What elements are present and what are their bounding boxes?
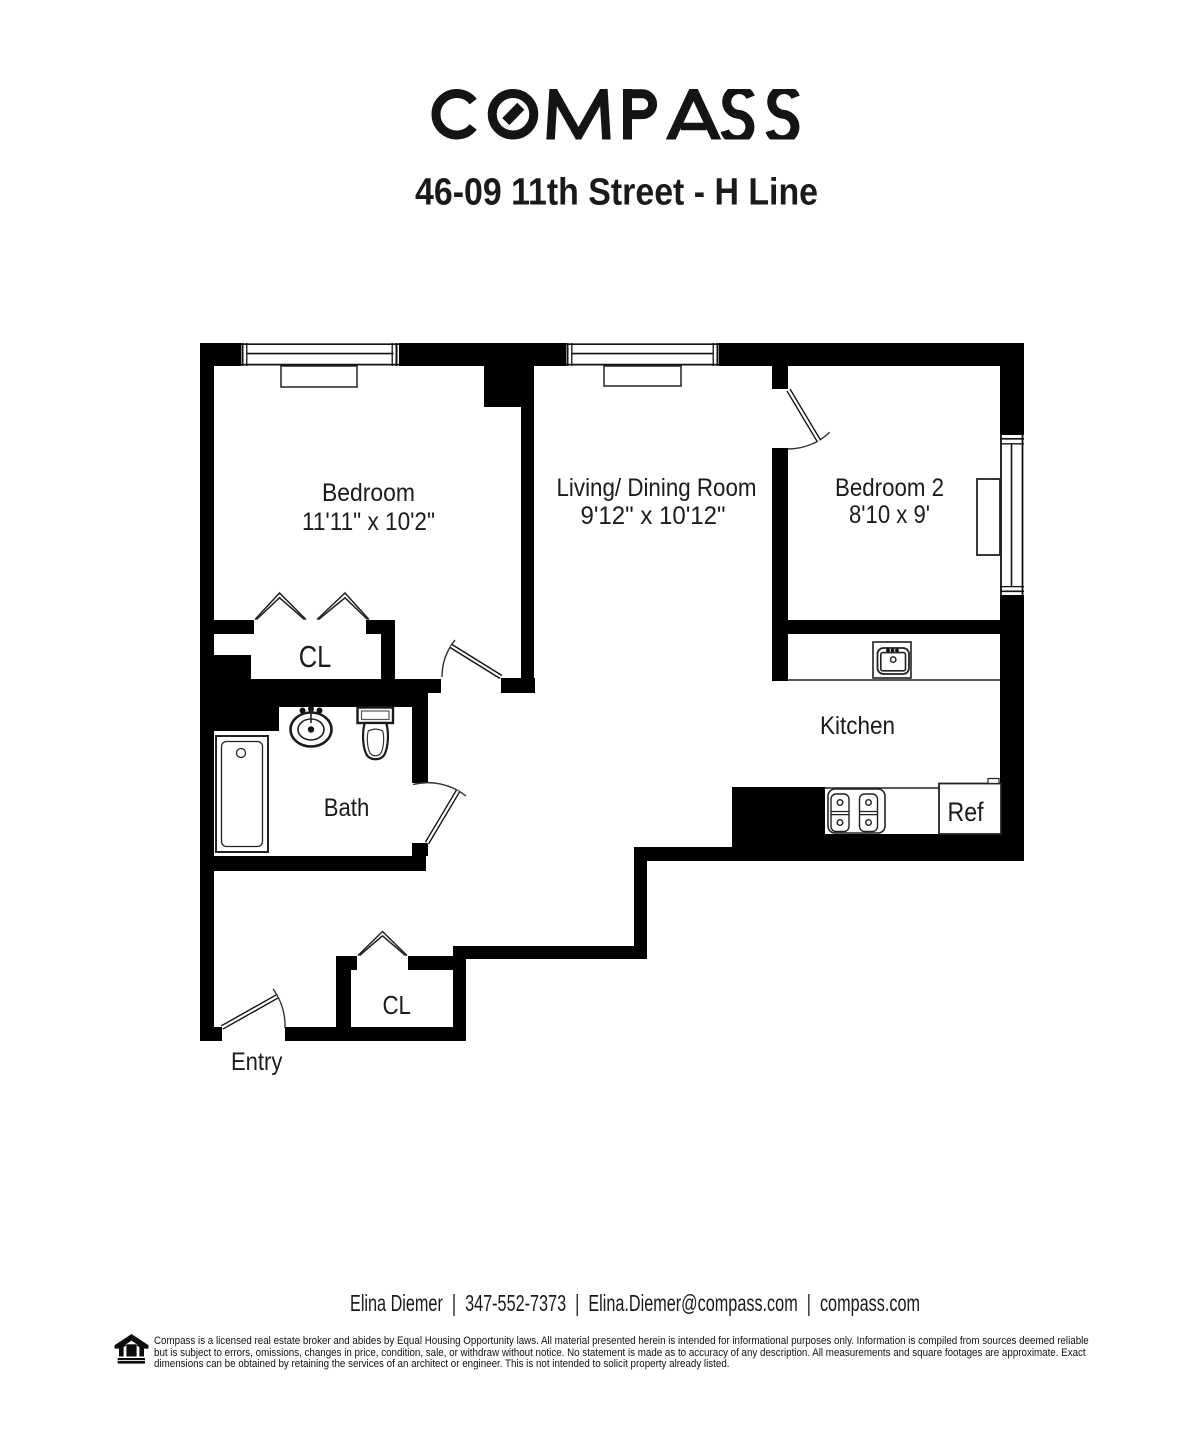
svg-text:Entry: Entry	[231, 1048, 283, 1076]
svg-text:Bedroom 2: Bedroom 2	[835, 474, 944, 502]
svg-text:46-09 11th Street - H Line: 46-09 11th Street - H Line	[415, 172, 818, 214]
svg-text:11'11" x 10'2": 11'11" x 10'2"	[302, 508, 435, 536]
svg-text:Bath: Bath	[324, 794, 370, 822]
svg-text:Elina Diemer | 347-552-7373: Elina Diemer | 347-552-7373 | Elina.Diem…	[350, 1290, 920, 1316]
svg-text:Kitchen: Kitchen	[820, 712, 895, 740]
svg-text:CL: CL	[299, 640, 332, 674]
svg-text:8'10 x 9': 8'10 x 9'	[849, 501, 930, 529]
svg-text:CL: CL	[382, 990, 411, 1020]
svg-text:Bedroom: Bedroom	[322, 479, 415, 507]
svg-text:9'12" x 10'12": 9'12" x 10'12"	[581, 502, 726, 530]
svg-text:Ref: Ref	[948, 797, 985, 827]
svg-text:Living/ Dining Room: Living/ Dining Room	[557, 474, 757, 502]
